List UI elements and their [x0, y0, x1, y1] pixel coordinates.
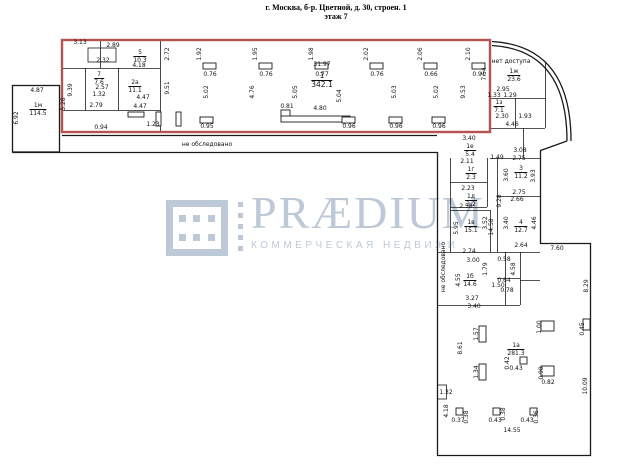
dim-label: 31.97	[313, 62, 330, 68]
dim-label: 1.92	[197, 47, 203, 60]
room-area: 23.6	[507, 76, 520, 83]
room-number: 1д	[465, 193, 477, 201]
room-label: 1в15.1	[464, 219, 477, 234]
room-area: 12.7	[514, 227, 527, 234]
dim-label: 0.38	[464, 410, 470, 423]
dim-label: 0.78	[500, 288, 513, 294]
plan-note: не обследовано	[441, 242, 447, 292]
dim-label: 4.55	[456, 273, 462, 286]
dim-label: 2.30	[495, 114, 508, 120]
dim-label: 3.13	[73, 40, 86, 46]
dim-label: 3.40	[504, 216, 510, 229]
floorplan-page: г. Москва, б-р. Цветной, д. 30, строен. …	[0, 0, 627, 470]
dim-label: 14.58	[489, 218, 495, 235]
room-number: 1г	[466, 166, 477, 174]
room-area: 11.2	[514, 173, 527, 180]
dim-label: 0.96	[389, 124, 402, 130]
dim-label: 0.76	[370, 72, 383, 78]
dim-label: 0.76	[203, 72, 216, 78]
dim-label: 4.80	[313, 106, 326, 112]
dim-label: 1.95	[253, 47, 259, 60]
dim-label: 9.51	[165, 81, 171, 94]
dim-label: 3.40	[467, 304, 480, 310]
dim-label: 0.66	[424, 72, 437, 78]
plan-note: не обследовано	[182, 142, 232, 148]
dim-label: 5.95	[454, 221, 460, 234]
dim-label: 9.53	[461, 85, 467, 98]
room-number: 1б	[463, 273, 476, 281]
dim-label: 4.47	[133, 104, 146, 110]
dim-label: 0.43	[509, 366, 522, 372]
room-number: 1а	[507, 342, 524, 350]
room-number: 1ж	[507, 68, 520, 76]
dim-label: 2.72	[165, 47, 171, 60]
dim-label: 1.49	[490, 155, 503, 161]
dim-label: 10.09	[583, 377, 589, 394]
dim-label: 2.10	[466, 47, 472, 60]
dim-label: 0.81	[280, 104, 293, 110]
room-label: 1б14.6	[463, 273, 476, 288]
room-number: 1з	[493, 99, 504, 107]
room-area: 11.1	[128, 87, 141, 94]
dim-label: 2.02	[364, 47, 370, 60]
room-label: 1е5.4	[464, 143, 476, 158]
room-label: 1м114.5	[29, 102, 46, 117]
plan-labels: 1.921.951.982.022.062.100.760.760.770.76…	[0, 0, 627, 470]
room-area: 14.6	[463, 281, 476, 288]
dim-label: 2.89	[106, 43, 119, 49]
dim-label: 1.32	[439, 390, 452, 396]
plan-title: г. Москва, б-р. Цветной, д. 30, строен. …	[45, 3, 627, 21]
dim-label: 4.18	[444, 404, 450, 417]
dim-label: 5.28	[61, 97, 67, 110]
room-number: 1в	[464, 219, 477, 227]
room-label: 510.3	[133, 49, 146, 64]
room-area: 2.3	[466, 174, 476, 181]
dim-label: 3.40	[462, 136, 475, 142]
dim-label: 0.98	[539, 366, 545, 379]
dim-label: 3.60	[504, 168, 510, 181]
room-number: 3	[514, 165, 527, 173]
dim-label: 1.34	[474, 365, 480, 378]
dim-label: 0.95	[200, 124, 213, 130]
dim-label: 1.23	[146, 122, 159, 128]
dim-label: 1.79	[483, 262, 489, 275]
dim-label: 3.00	[466, 258, 479, 264]
dim-label: 3.08	[513, 148, 526, 154]
room-number: 1м	[29, 102, 46, 110]
dim-label: 0.96	[342, 124, 355, 130]
dim-label: 8.29	[584, 279, 590, 292]
dim-label: 1.93	[518, 114, 531, 120]
dim-label: 8.61	[458, 341, 464, 354]
dim-label: 5.02	[434, 85, 440, 98]
floor-line: этаж 7	[45, 12, 627, 21]
room-label: 77.6	[94, 71, 104, 86]
dim-label: 4.47	[136, 95, 149, 101]
dim-label: 2.64	[514, 243, 527, 249]
room-area: 10.3	[133, 57, 146, 64]
dim-label: 2.06	[418, 47, 424, 60]
dim-label: 3.27	[465, 296, 478, 302]
dim-label: 0.36	[534, 410, 540, 423]
dim-label: 1.98	[309, 47, 315, 60]
dim-label: 2.75	[512, 156, 525, 162]
room-label: 1а281.3	[507, 342, 524, 357]
room-area: 7.6	[94, 79, 104, 86]
plan-note: нет доступа	[492, 59, 531, 65]
room-area: 5.4	[465, 151, 475, 158]
room-area: 281.3	[507, 350, 524, 357]
dim-label: 1.57	[474, 327, 480, 340]
room-label: 1г2.3	[466, 166, 477, 181]
room-area: 2.2	[466, 201, 476, 208]
dim-label: 9.28	[497, 194, 503, 207]
room-number: 1е	[464, 143, 476, 151]
room-area: 15.1	[464, 227, 477, 234]
room-number: 4	[514, 219, 527, 227]
address-line: г. Москва, б-р. Цветной, д. 30, строен. …	[45, 3, 627, 12]
dim-label: 5.03	[392, 85, 398, 98]
dim-label: 4.76	[250, 85, 256, 98]
room-label: 1ж23.6	[507, 68, 520, 83]
dim-label: 2.79	[89, 103, 102, 109]
room-label: 1342.1	[311, 72, 332, 89]
room-number: 7	[94, 71, 104, 79]
dim-label: 0.82	[541, 380, 554, 386]
dim-label: 0.38	[501, 407, 507, 420]
room-label: 1д2.2	[465, 193, 477, 208]
room-area: 342.1	[311, 80, 332, 89]
dim-label: 2.11	[460, 159, 473, 165]
room-label: 311.2	[514, 165, 527, 180]
dim-label: 2.23	[461, 186, 474, 192]
dim-label: 4.87	[30, 88, 43, 94]
dim-label: 6.92	[14, 111, 20, 124]
dim-label: 7.54	[482, 67, 488, 80]
room-label: 1з7.1	[493, 99, 504, 114]
dim-label: 4.46	[505, 122, 518, 128]
dim-label: 5.05	[293, 85, 299, 98]
dim-label: 0.96	[432, 124, 445, 130]
room-label: 412.7	[514, 219, 527, 234]
dim-label: 7.60	[550, 246, 563, 252]
dim-label: 0.76	[259, 72, 272, 78]
dim-label: 5.02	[204, 85, 210, 98]
dim-label: 2.32	[96, 58, 109, 64]
dim-label: 0.94	[94, 125, 107, 131]
room-area: 7.1	[494, 107, 504, 114]
dim-label: 0.45	[580, 322, 586, 335]
dim-label: 5.04	[337, 89, 343, 102]
dim-label: 3.93	[531, 169, 537, 182]
room-number: 5	[133, 49, 146, 57]
dim-label: 14.55	[503, 428, 520, 434]
dim-label: 1.00	[537, 320, 543, 333]
dim-label: 1.29	[503, 93, 516, 99]
dim-label: 0.43	[520, 418, 533, 424]
room-label: 2а11.1	[128, 79, 141, 94]
dim-label: 4.46	[532, 216, 538, 229]
room-number: 2а	[128, 79, 141, 87]
dim-label: 1.32	[92, 92, 105, 98]
dim-label: 2.66	[510, 197, 523, 203]
dim-label: 9.39	[68, 83, 74, 96]
room-area: 114.5	[29, 110, 46, 117]
dim-label: 2.74	[462, 249, 475, 255]
dim-label: 0.58	[497, 257, 510, 263]
dim-label: 4.58	[511, 262, 517, 275]
